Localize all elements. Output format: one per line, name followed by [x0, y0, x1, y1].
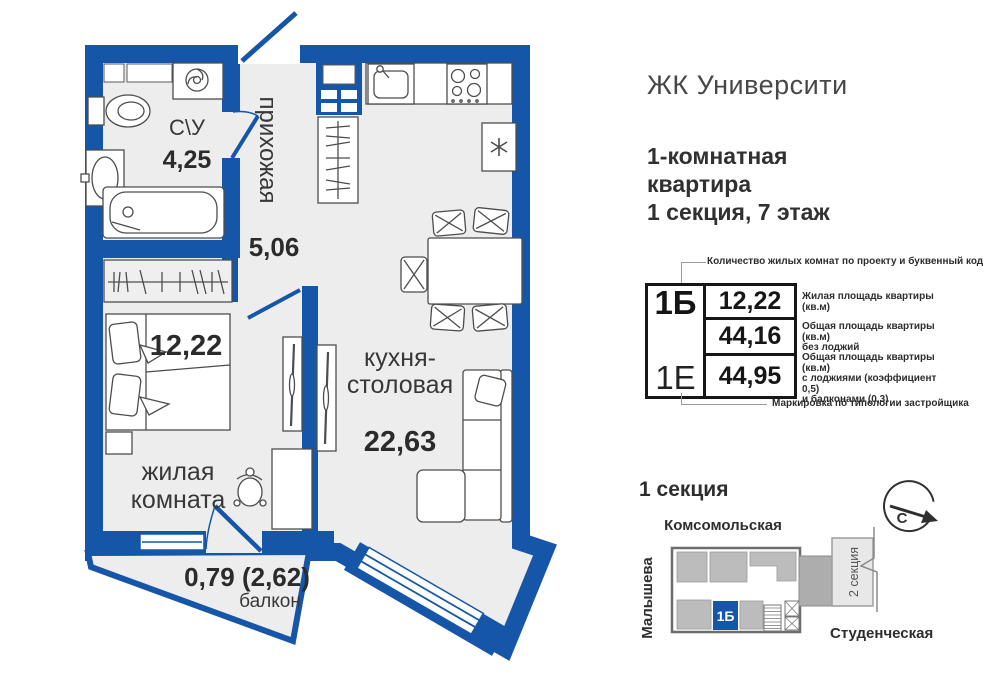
living-area: 12,22 [150, 330, 223, 362]
tv-living-icon [283, 337, 302, 431]
kitchen-sink-icon [368, 64, 414, 104]
living-area-value: 12,22 [706, 286, 794, 320]
street-bottom-label: Студенческая [830, 625, 933, 642]
street-top-label: Комсомольская [664, 517, 782, 534]
kitchen-area: 22,63 [364, 426, 437, 458]
washing-machine-icon [173, 63, 223, 99]
apartment-subtitle: 1-комнатная квартира 1 секция, 7 этаж [647, 142, 830, 226]
bathroom-area: 4,25 [163, 146, 212, 174]
total-area-with-balcony-value: 44,95 [706, 356, 794, 396]
section-map: 1 секция Комсомольская Малышева Студенче… [639, 478, 938, 642]
leader-top-v [681, 262, 682, 283]
elevator-icons [785, 601, 799, 630]
bathroom-niche [104, 64, 172, 82]
toilet-icon [88, 95, 150, 127]
living-label-2: комната [131, 486, 226, 514]
dining-table-icon [428, 238, 522, 304]
type-code: 1Б [654, 287, 696, 319]
leader-top-h [681, 262, 706, 263]
floorplan-page: С\У 4,25 прихожая 5,06 12,22 жилая комна… [0, 0, 990, 700]
section2-connector [799, 556, 832, 606]
stove-icon [447, 64, 487, 104]
balcony-label: балкон [239, 591, 301, 612]
stairs-icon [764, 605, 781, 631]
apartment-plan: С\У 4,25 прихожая 5,06 12,22 жилая комна… [81, 13, 545, 648]
total-area-value: 44,16 [706, 320, 794, 356]
living-window [140, 534, 204, 550]
kitchen-wardrobe-icon [318, 117, 358, 203]
apartment-info-card: 1Б 1Е 12,22 44,16 44,95 [645, 283, 797, 399]
kitchen-label-2: столовая [347, 371, 453, 399]
info-top-note: Количество жилых комнат по проекту и бук… [707, 257, 983, 268]
north-label: С [897, 510, 908, 527]
bathroom-label: С\У [169, 115, 206, 140]
kitchen-label-1: кухня- [364, 344, 436, 372]
leader-bottom-h [681, 404, 767, 405]
hallway-area: 5,06 [249, 232, 300, 262]
type-code-cell: 1Б 1Е [648, 286, 706, 396]
section2-label: 2 секция [847, 547, 861, 597]
bathtub-icon [103, 187, 224, 238]
project-title: ЖК Университи [647, 70, 848, 101]
section-map-title: 1 секция [639, 478, 728, 501]
tv-kitchen-icon [317, 345, 336, 451]
apartment-subtitle-line2: квартира [647, 170, 830, 198]
balcony-area: 0,79 (2,62) [184, 562, 310, 592]
info-note-2: Общая площадь квартиры (кв.м) без лоджий [802, 322, 952, 354]
info-note-1: Жилая площадь квартиры (кв.м) [802, 292, 952, 313]
wardrobe-icon [104, 260, 232, 302]
living-label-1: жилая [142, 458, 215, 486]
fridge-icon [482, 123, 516, 171]
desk-icon [272, 449, 312, 529]
type-code-alt: 1Е [655, 362, 695, 394]
north-arrow-icon: С [884, 481, 938, 531]
info-bottom-note: Маркировка по типологии застройщика [772, 399, 969, 410]
hallway-label: прихожая [254, 97, 281, 204]
apartment-subtitle-line1: 1-комнатная [647, 142, 830, 170]
apartment-subtitle-line3: 1 секция, 7 этаж [647, 198, 830, 226]
unit-marker-label: 1Б [717, 608, 735, 624]
street-left-label: Малышева [639, 557, 656, 639]
